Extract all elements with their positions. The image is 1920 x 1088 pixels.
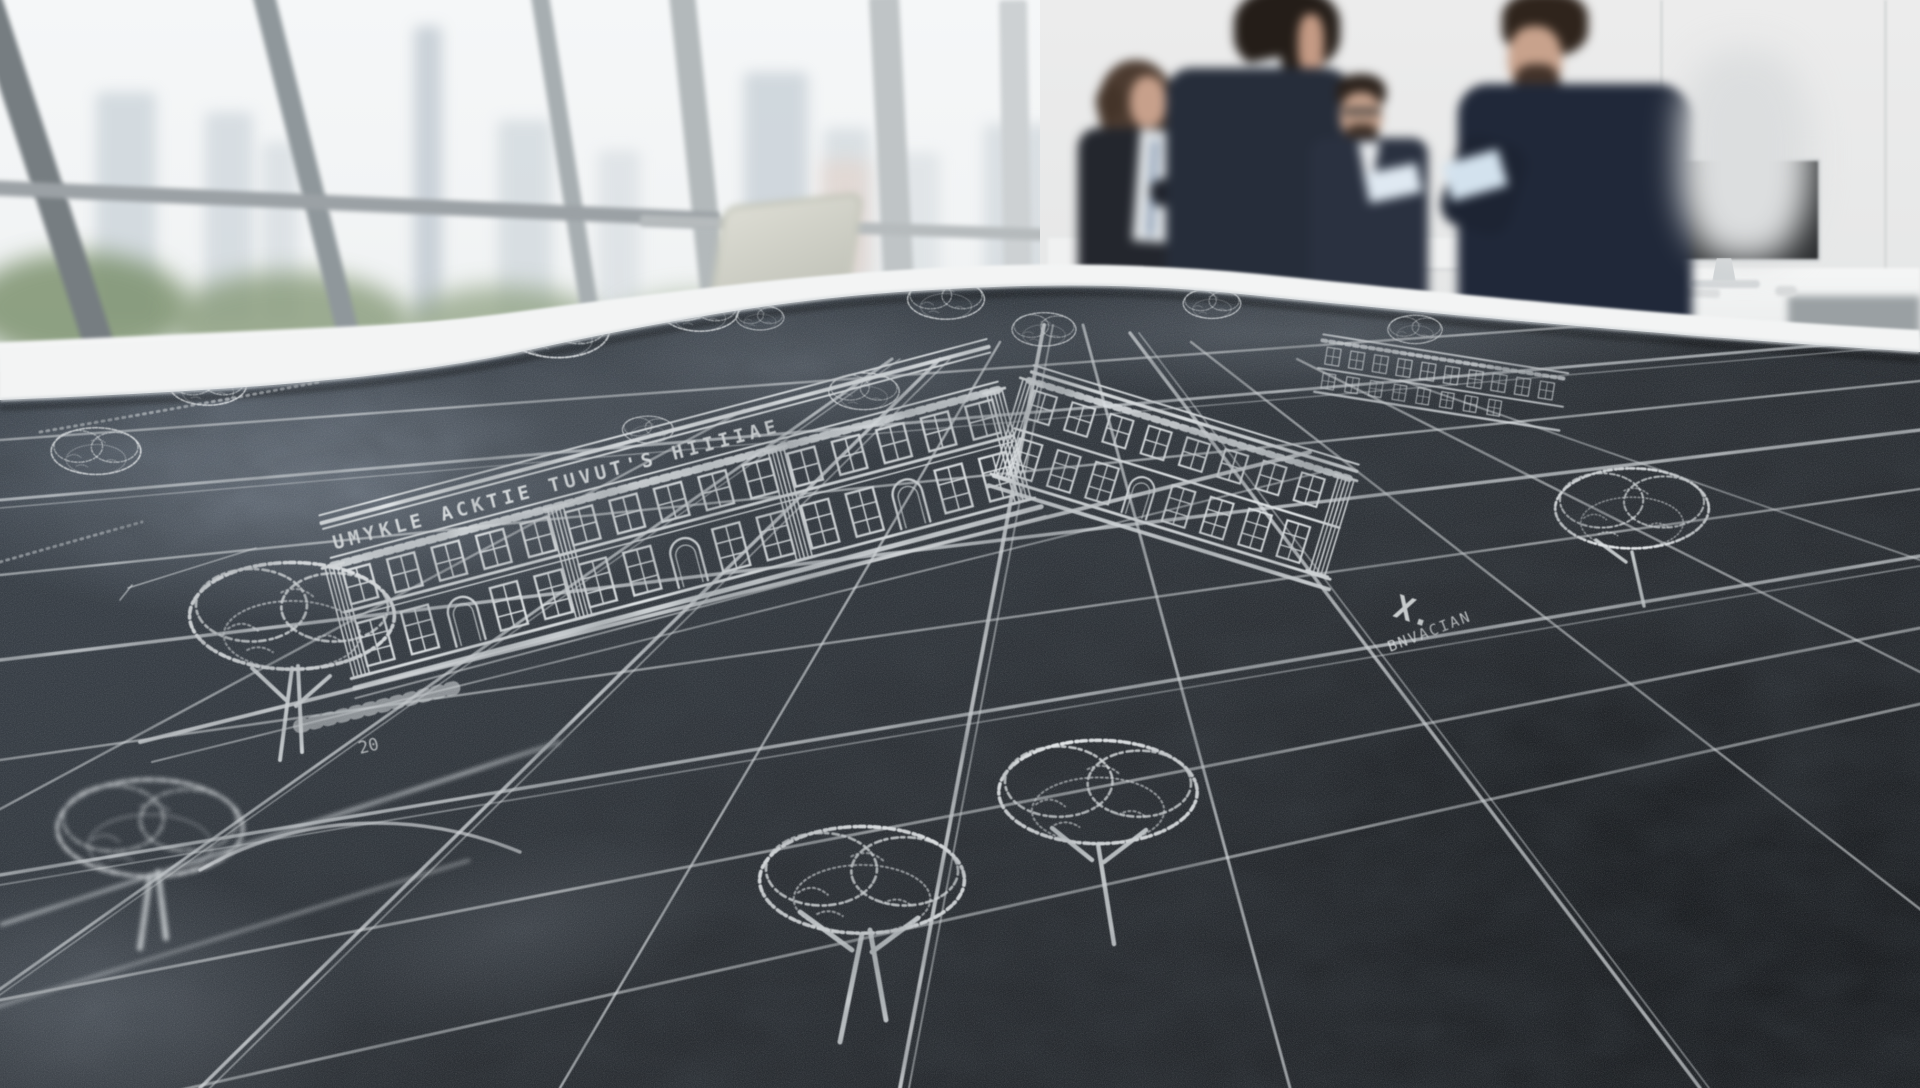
office-scene: UMYKLE ACKTIE TUVUT'S HIIIIAE [0, 0, 1920, 1088]
paper-grain-texture [0, 260, 1920, 1088]
blueprint-sheet: UMYKLE ACKTIE TUVUT'S HIIIIAE [0, 0, 1920, 1088]
